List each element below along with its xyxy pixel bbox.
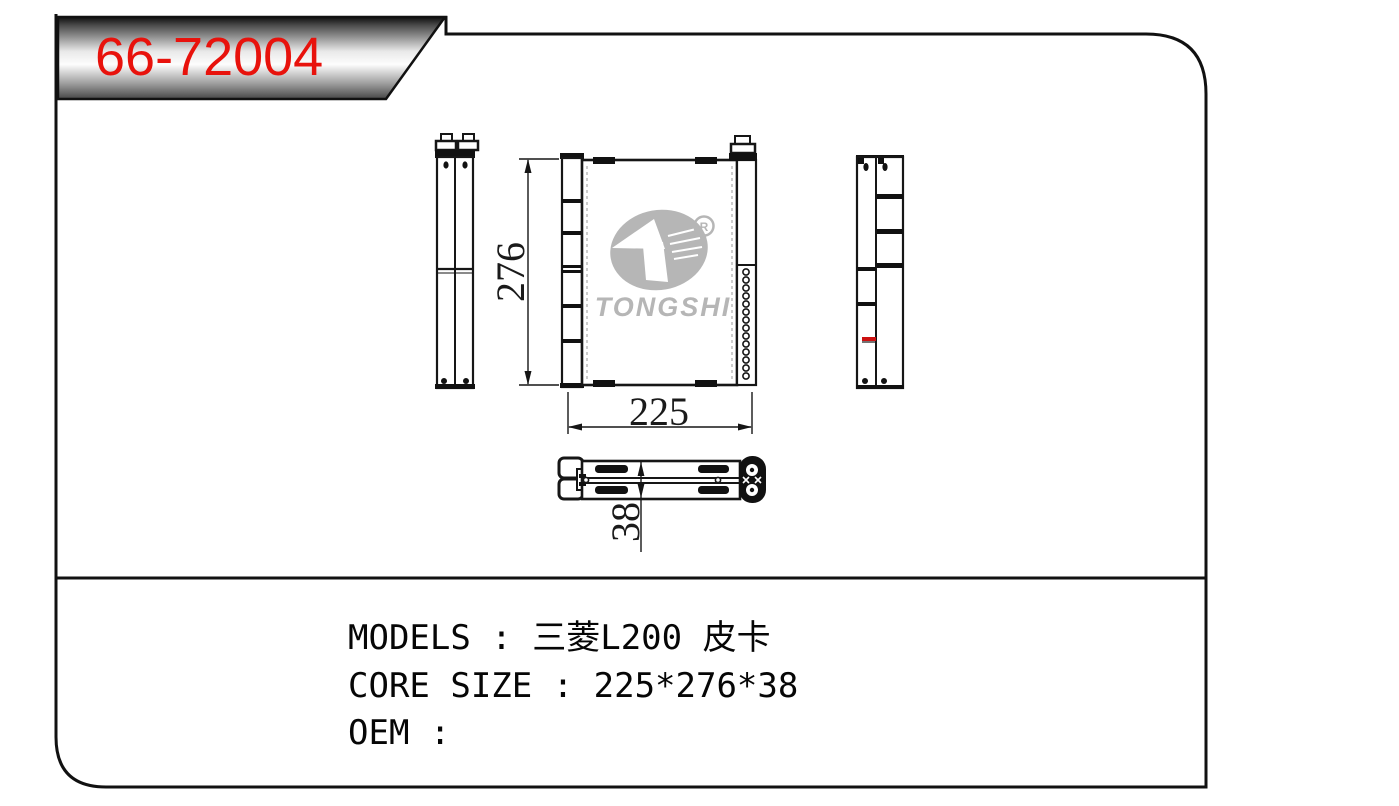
- left-rivet-2: [462, 161, 467, 168]
- bottom-flange-pin: [750, 468, 754, 472]
- dim276-arrow-up: [525, 159, 532, 173]
- front-left-tank-baffle: [562, 339, 582, 343]
- left-rivet-1: [443, 161, 448, 168]
- front-left-tank-baffle: [562, 199, 582, 203]
- front-top-tab-1: [593, 157, 615, 164]
- right-red-mark: [862, 337, 876, 341]
- front-left-tank-baffle: [562, 304, 582, 308]
- spec-core-size-line: CORE SIZE : 225*276*38: [348, 666, 1048, 706]
- right-baffle: [857, 302, 876, 306]
- dimension-label-width: 225: [609, 392, 709, 432]
- dim276-arrow-down: [525, 371, 532, 385]
- front-left-tank-baffle: [562, 265, 582, 268]
- dimension-label-height: 276: [491, 222, 531, 322]
- bottom-view: [559, 456, 766, 503]
- right-bottom-rivet-1: [862, 378, 868, 384]
- bottom-flange-pin: [750, 488, 754, 492]
- right-bottom-rivet-2: [881, 378, 887, 384]
- bottom-slot: [698, 465, 729, 473]
- right-baffle: [877, 229, 903, 234]
- front-left-tank-baffle: [562, 231, 582, 235]
- front-top-tab-2: [695, 157, 717, 164]
- left-bottom-rivet-2: [463, 378, 469, 384]
- part-number-label: 66-72004: [95, 26, 355, 88]
- catalog-page: R TONGSHI 66-72004 276 225 38 MODELS : 三…: [0, 0, 1399, 806]
- right-baffle: [857, 267, 876, 271]
- bottom-pin-2: [715, 477, 720, 482]
- dim225-arrow-right: [738, 424, 752, 431]
- dim225-arrow-left: [568, 424, 582, 431]
- front-port-band: [729, 153, 757, 161]
- right-baffle: [877, 194, 903, 199]
- front-bottom-tab-1: [593, 380, 615, 387]
- right-rivet-1: [863, 163, 868, 171]
- front-left-tank-foot: [560, 383, 584, 388]
- bottom-pin-1: [583, 477, 588, 482]
- bottom-slot: [698, 486, 729, 494]
- right-corner-mark-2: [878, 158, 884, 164]
- front-left-tank-baffle: [562, 270, 582, 273]
- right-baffle: [877, 263, 903, 268]
- dimension-label-depth: 38: [606, 472, 646, 572]
- right-tank-view: [856, 155, 904, 389]
- left-port-flange-1: [436, 141, 456, 150]
- right-corner-mark-1: [858, 158, 864, 164]
- left-port-flange-2: [458, 141, 478, 150]
- front-port-flange: [731, 144, 755, 153]
- left-tank-view: [435, 134, 478, 389]
- left-bottom-rivet-1: [441, 378, 447, 384]
- right-body: [857, 157, 903, 388]
- logo-wordmark: TONGSHI: [595, 292, 732, 322]
- registered-trademark-letter: R: [700, 220, 709, 234]
- right-rivet-2: [882, 163, 887, 171]
- right-bottom-band: [856, 385, 904, 389]
- left-bottom-band: [435, 384, 475, 389]
- front-bottom-tab-2: [695, 380, 717, 387]
- spec-oem-line: OEM :: [348, 713, 1048, 753]
- spec-models-line: MODELS : 三菱L200 皮卡: [348, 618, 1048, 658]
